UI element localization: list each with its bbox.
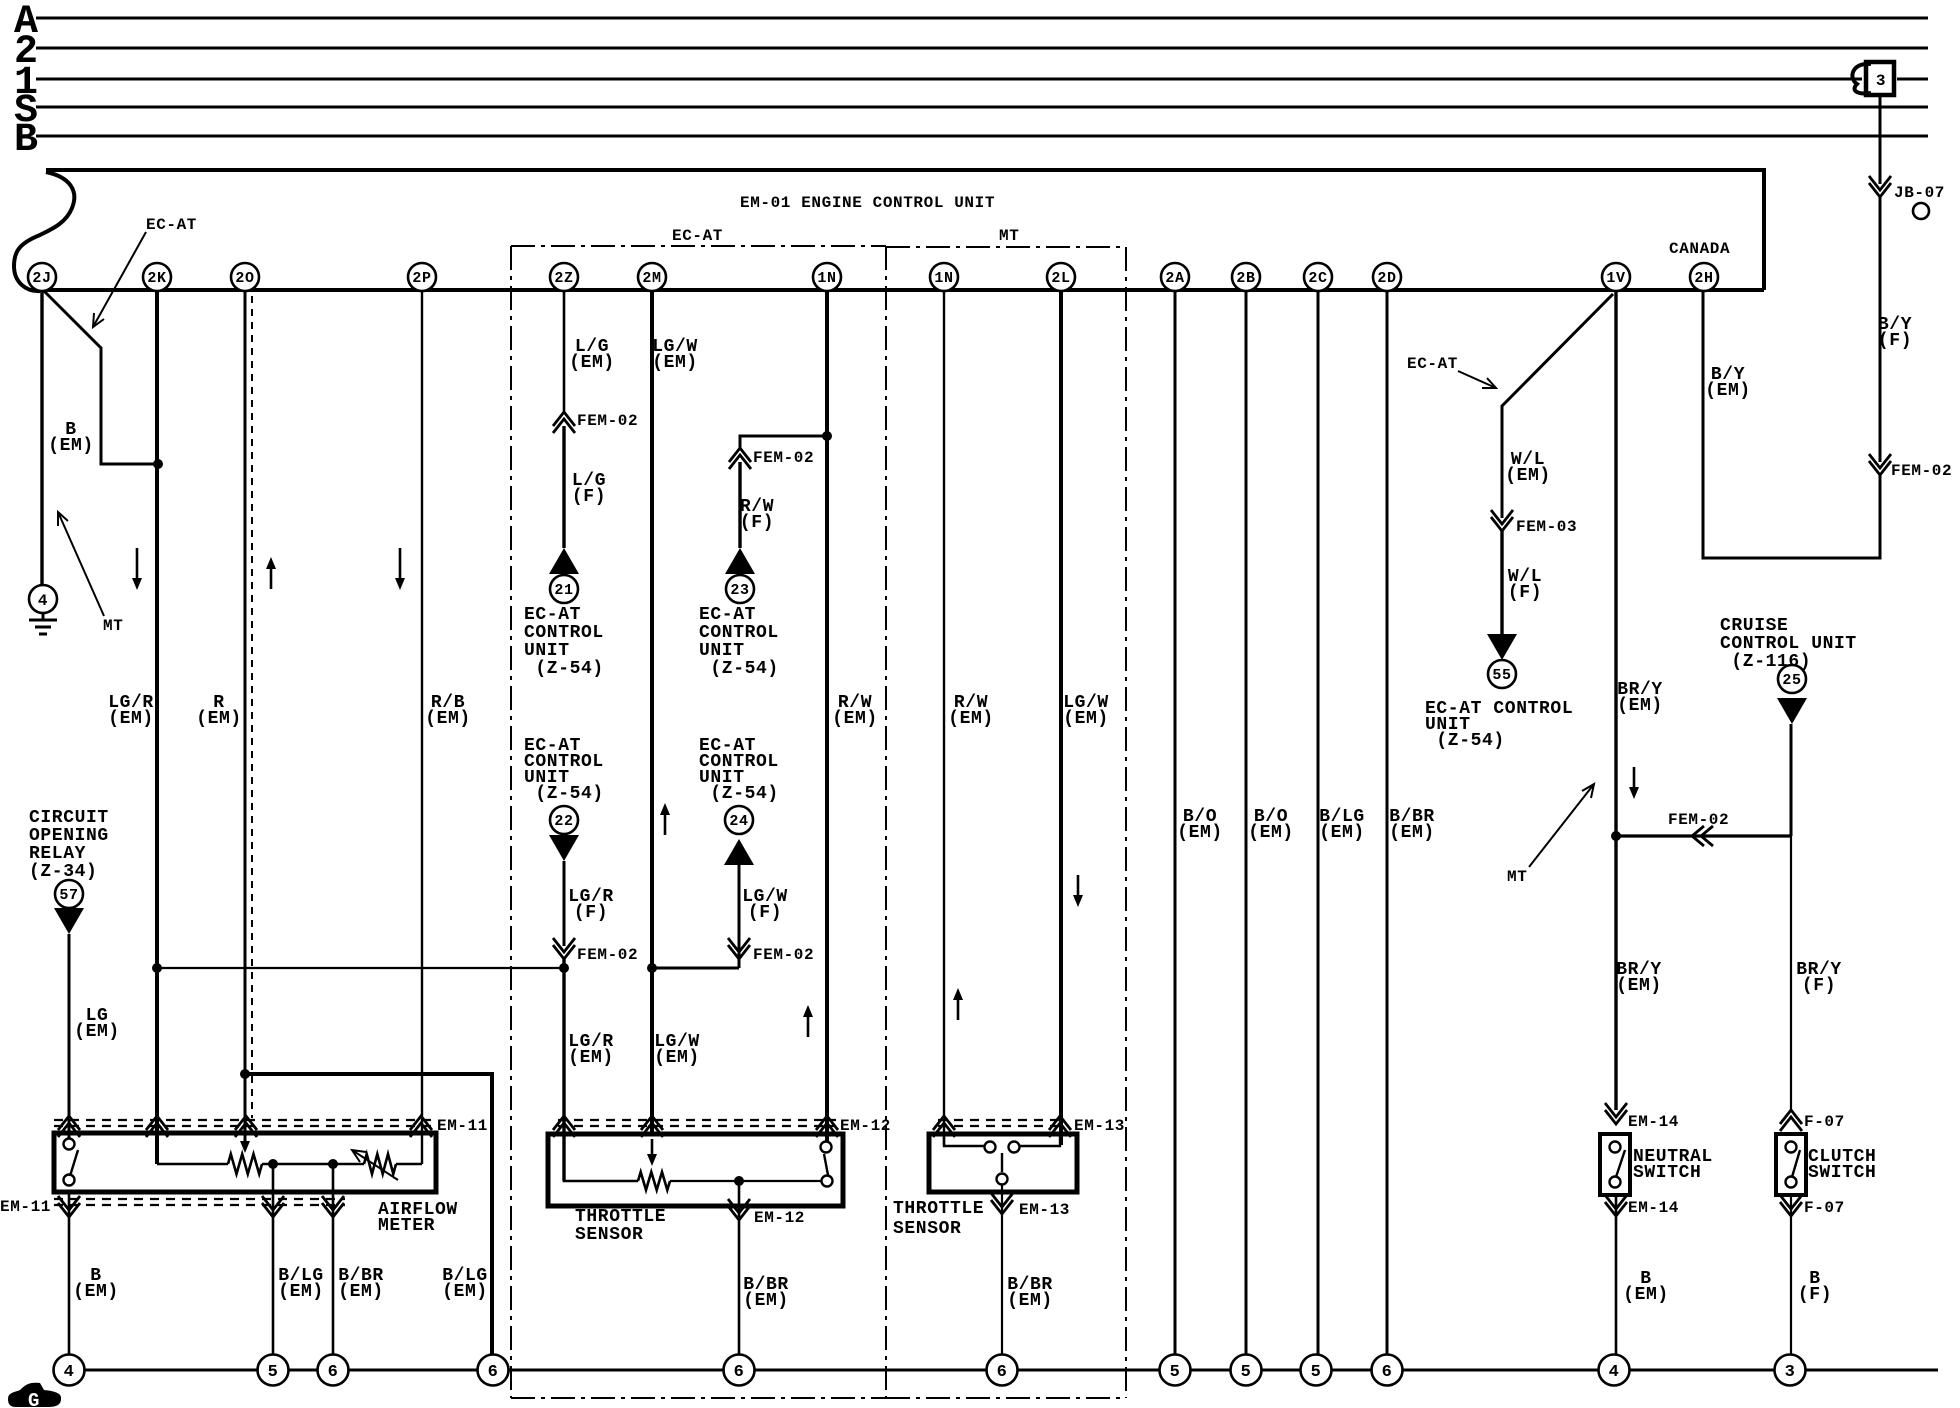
svg-text:FEM-02: FEM-02	[577, 412, 638, 430]
svg-text:55: 55	[1492, 667, 1511, 684]
svg-text:3: 3	[1785, 1363, 1796, 1382]
svg-text:L/G(EM): L/G(EM)	[569, 337, 615, 373]
svg-text:2A: 2A	[1165, 270, 1184, 287]
svg-text:4: 4	[1609, 1363, 1620, 1382]
svg-text:2J: 2J	[32, 270, 51, 287]
svg-text:R/W(EM): R/W(EM)	[948, 693, 994, 729]
svg-text:24: 24	[729, 813, 748, 830]
svg-text:EM-12: EM-12	[840, 1117, 891, 1135]
svg-text:2P: 2P	[412, 270, 431, 287]
svg-text:1N: 1N	[934, 270, 953, 287]
svg-text:FEM-02: FEM-02	[1891, 462, 1952, 480]
svg-text:JB-07: JB-07	[1894, 184, 1945, 202]
svg-text:57: 57	[59, 887, 78, 904]
svg-text:L/G(F): L/G(F)	[572, 471, 606, 507]
svg-text:2H: 2H	[1694, 270, 1713, 287]
svg-text:BR/Y(EM): BR/Y(EM)	[1616, 960, 1662, 996]
svg-text:R/W(F): R/W(F)	[740, 497, 774, 533]
svg-text:2M: 2M	[642, 270, 661, 287]
svg-text:1N: 1N	[817, 270, 836, 287]
svg-text:3: 3	[1876, 72, 1886, 90]
svg-text:4: 4	[38, 592, 48, 610]
svg-text:EM-01 ENGINE CONTROL UNIT: EM-01 ENGINE CONTROL UNIT	[740, 194, 995, 212]
svg-text:5: 5	[1241, 1363, 1252, 1382]
svg-text:LG/W(F): LG/W(F)	[742, 887, 788, 923]
svg-text:2L: 2L	[1051, 270, 1070, 287]
svg-text:EM-13: EM-13	[1074, 1117, 1125, 1135]
svg-text:LG/R(F): LG/R(F)	[568, 887, 614, 923]
svg-text:2Z: 2Z	[554, 270, 573, 287]
svg-text:5: 5	[1170, 1363, 1181, 1382]
svg-text:21: 21	[554, 582, 573, 599]
svg-text:22: 22	[554, 813, 573, 830]
svg-text:FEM-03: FEM-03	[1516, 518, 1577, 536]
svg-text:FEM-02: FEM-02	[753, 946, 814, 964]
svg-text:B/BR(EM): B/BR(EM)	[1389, 807, 1435, 843]
svg-text:EC-AT: EC-AT	[672, 227, 723, 245]
svg-text:W/L(F): W/L(F)	[1508, 567, 1542, 603]
svg-text:BR/Y(EM): BR/Y(EM)	[1617, 680, 1663, 716]
svg-text:2B: 2B	[1236, 270, 1255, 287]
svg-text:R/B(EM): R/B(EM)	[425, 693, 471, 729]
svg-text:FEM-02: FEM-02	[753, 449, 814, 467]
svg-text:F-07: F-07	[1804, 1199, 1845, 1217]
svg-text:B/Y(EM): B/Y(EM)	[1705, 365, 1751, 401]
svg-text:NEUTRALSWITCH: NEUTRALSWITCH	[1633, 1147, 1713, 1183]
svg-text:MT: MT	[999, 227, 1019, 245]
svg-text:B/BR(EM): B/BR(EM)	[743, 1275, 789, 1311]
svg-text:6: 6	[734, 1363, 745, 1382]
svg-text:4: 4	[64, 1363, 75, 1382]
svg-text:B/LG(EM): B/LG(EM)	[442, 1266, 488, 1302]
svg-text:FEM-02: FEM-02	[1668, 811, 1729, 829]
svg-text:B/BR(EM): B/BR(EM)	[338, 1266, 384, 1302]
svg-text:B/LG(EM): B/LG(EM)	[1319, 807, 1365, 843]
svg-text:CIRCUITOPENINGRELAY(Z-34): CIRCUITOPENINGRELAY(Z-34)	[29, 808, 109, 882]
svg-text:EM-11: EM-11	[0, 1198, 51, 1216]
svg-text:B/O(EM): B/O(EM)	[1177, 807, 1223, 843]
svg-text:EM-14: EM-14	[1628, 1199, 1679, 1217]
svg-text:B/O(EM): B/O(EM)	[1248, 807, 1294, 843]
svg-text:EM-12: EM-12	[754, 1209, 805, 1227]
svg-text:F-07: F-07	[1804, 1113, 1845, 1131]
svg-text:LG/R(EM): LG/R(EM)	[568, 1032, 614, 1068]
svg-text:EC-AT: EC-AT	[1407, 355, 1458, 373]
svg-text:EM-13: EM-13	[1019, 1201, 1070, 1219]
svg-text:W/L(EM): W/L(EM)	[1505, 450, 1551, 486]
svg-text:CANADA: CANADA	[1669, 240, 1730, 258]
svg-text:1V: 1V	[1606, 270, 1625, 287]
svg-text:CLUTCHSWITCH: CLUTCHSWITCH	[1808, 1147, 1876, 1183]
svg-text:FEM-02: FEM-02	[577, 946, 638, 964]
svg-text:MT: MT	[1507, 868, 1527, 886]
svg-text:B/BR(EM): B/BR(EM)	[1007, 1275, 1053, 1311]
svg-text:B/Y(F): B/Y(F)	[1878, 315, 1912, 351]
svg-text:5: 5	[1311, 1363, 1322, 1382]
svg-text:2K: 2K	[147, 270, 166, 287]
svg-text:LG/W(EM): LG/W(EM)	[1063, 693, 1109, 729]
svg-text:R/W(EM): R/W(EM)	[832, 693, 878, 729]
svg-text:2O: 2O	[235, 270, 254, 287]
svg-text:B: B	[14, 118, 39, 163]
svg-text:23: 23	[730, 582, 749, 599]
svg-text:5: 5	[268, 1363, 279, 1382]
svg-text:6: 6	[488, 1363, 499, 1382]
svg-text:MT: MT	[103, 617, 123, 635]
svg-text:B/LG(EM): B/LG(EM)	[278, 1266, 324, 1302]
svg-text:BR/Y(F): BR/Y(F)	[1796, 960, 1842, 996]
svg-text:2D: 2D	[1377, 270, 1396, 287]
svg-text:LG/R(EM): LG/R(EM)	[108, 693, 154, 729]
svg-text:25: 25	[1782, 672, 1801, 689]
svg-text:6: 6	[1382, 1363, 1393, 1382]
svg-text:EM-14: EM-14	[1628, 1113, 1679, 1131]
svg-text:2C: 2C	[1308, 270, 1327, 287]
svg-text:G: G	[28, 1390, 40, 1408]
svg-text:LG/W(EM): LG/W(EM)	[652, 337, 698, 373]
svg-text:6: 6	[997, 1363, 1008, 1382]
svg-text:6: 6	[328, 1363, 339, 1382]
svg-text:EC-AT: EC-AT	[146, 216, 197, 234]
svg-text:LG/W(EM): LG/W(EM)	[654, 1032, 700, 1068]
svg-text:EM-11: EM-11	[437, 1117, 488, 1135]
